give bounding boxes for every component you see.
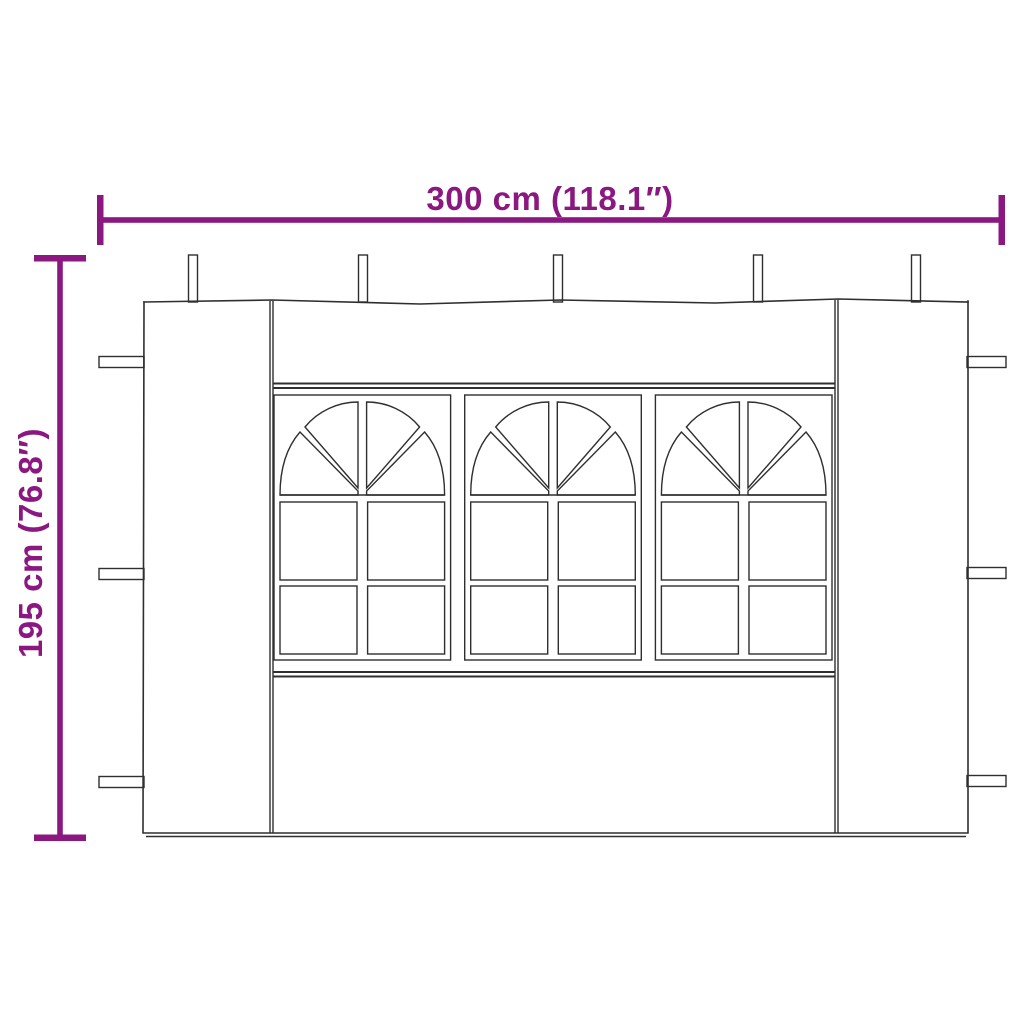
sidewall-drawing: [0, 0, 1024, 1024]
left-side-tabs: [99, 357, 144, 788]
product-dimension-diagram: 300 cm (118.1″) 195 cm (76.8″): [0, 0, 1024, 1024]
height-dimension-label: 195 cm (76.8″): [12, 428, 50, 658]
window-band: [273, 384, 835, 677]
sidewall-outline: [143, 299, 968, 837]
right-side-tabs: [967, 357, 1006, 787]
left-panel-seam: [270, 301, 273, 833]
top-loops: [189, 255, 921, 302]
arched-window-3: [655, 395, 832, 660]
arched-window-2: [465, 395, 642, 660]
arched-window-1: [274, 395, 451, 660]
right-panel-seam: [835, 300, 838, 833]
width-dimension-label: 300 cm (118.1″): [426, 180, 673, 218]
